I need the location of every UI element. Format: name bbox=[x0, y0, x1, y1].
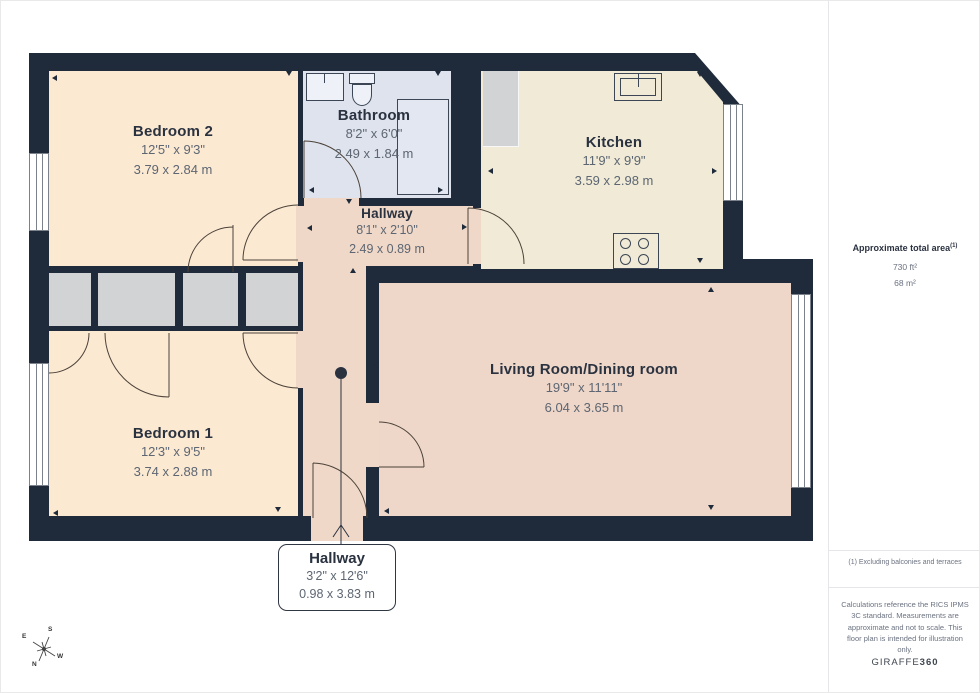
room-name: Living Room/Dining room bbox=[490, 361, 678, 378]
sidebar-divider-1 bbox=[829, 550, 980, 551]
area-m-value: 68 m² bbox=[829, 278, 980, 288]
room-dim-metric: 3.74 x 2.88 m bbox=[133, 462, 213, 482]
room-dim-imperial: 12'3" x 9'5" bbox=[133, 442, 213, 462]
room-dim-metric: 6.04 x 3.65 m bbox=[490, 398, 678, 418]
doorway-bedroom2 bbox=[296, 206, 305, 262]
room-dim-metric: 3.59 x 2.98 m bbox=[575, 171, 654, 191]
compass-star bbox=[33, 637, 55, 661]
room-dim-imperial: 11'9" x 9'9" bbox=[575, 151, 654, 171]
room-name: Bathroom bbox=[335, 107, 414, 124]
room-name: Hallway bbox=[349, 206, 425, 221]
room-name: Hallway bbox=[283, 550, 391, 567]
doorway-living bbox=[366, 403, 379, 467]
kitchen-sink-tap bbox=[638, 73, 639, 87]
label-hallway: Hallway 8'1" x 2'10" 2.49 x 0.89 m bbox=[349, 206, 425, 259]
compass-south: S bbox=[48, 626, 52, 633]
footnote-text: (1) Excluding balconies and terraces bbox=[829, 559, 980, 566]
floorplan-page: Bedroom 2 12'5" x 9'3" 3.79 x 2.84 m Bat… bbox=[0, 0, 980, 693]
area-footnote-marker: (1) bbox=[950, 243, 957, 249]
closet-2 bbox=[98, 273, 175, 326]
room-dim-imperial: 8'1" x 2'10" bbox=[349, 221, 425, 240]
hob-burner-1 bbox=[620, 238, 631, 249]
label-living: Living Room/Dining room 19'9" x 11'11" 6… bbox=[490, 361, 678, 418]
room-name: Bedroom 1 bbox=[133, 425, 213, 442]
window-kitchen bbox=[723, 104, 743, 201]
bathroom-sink-tap bbox=[324, 73, 325, 83]
room-dim-metric: 2.49 x 0.89 m bbox=[349, 240, 425, 259]
kitchen-counter bbox=[483, 71, 519, 147]
area-title: Approximate total area(1) bbox=[829, 243, 980, 253]
compass-east: E bbox=[22, 633, 26, 640]
doorway-front bbox=[311, 516, 363, 541]
window-living bbox=[791, 294, 811, 488]
closet-1 bbox=[49, 273, 91, 326]
info-sidebar: Approximate total area(1) 730 ft² 68 m² … bbox=[828, 1, 980, 693]
area-ft-value: 730 ft² bbox=[829, 262, 980, 272]
room-dim-imperial: 8'2" x 6'0" bbox=[335, 124, 414, 144]
room-name: Kitchen bbox=[575, 134, 654, 151]
room-bedroom1 bbox=[49, 331, 298, 516]
toilet-bowl bbox=[352, 84, 372, 106]
window-bedroom1 bbox=[29, 363, 49, 486]
hob bbox=[613, 233, 659, 269]
bathroom-sink bbox=[306, 73, 344, 101]
label-bedroom1: Bedroom 1 12'3" x 9'5" 3.74 x 2.88 m bbox=[133, 425, 213, 482]
closet-4 bbox=[246, 273, 298, 326]
disclaimer-text: Calculations reference the RICS IPMS 3C … bbox=[829, 599, 980, 655]
compass-north: N bbox=[32, 661, 37, 668]
room-dim-metric: 2.49 x 1.84 m bbox=[335, 144, 414, 164]
room-dim-imperial: 3'2" x 12'6" bbox=[283, 567, 391, 585]
hob-burner-2 bbox=[638, 238, 649, 249]
doorway-bedroom1 bbox=[296, 331, 305, 388]
compass-west: W bbox=[57, 653, 63, 660]
window-bedroom2 bbox=[29, 153, 49, 231]
label-bedroom2: Bedroom 2 12'5" x 9'3" 3.79 x 2.84 m bbox=[133, 123, 213, 180]
room-dim-imperial: 19'9" x 11'11" bbox=[490, 378, 678, 398]
area-title-text: Approximate total area bbox=[853, 243, 951, 253]
brand-bold: 360 bbox=[920, 657, 939, 668]
room-name: Bedroom 2 bbox=[133, 123, 213, 140]
sidebar-divider-2 bbox=[829, 587, 980, 588]
room-dim-metric: 0.98 x 3.83 m bbox=[283, 585, 391, 603]
brand-regular: GIRAFFE bbox=[871, 657, 919, 668]
closet-3 bbox=[183, 273, 238, 326]
label-bathroom: Bathroom 8'2" x 6'0" 2.49 x 1.84 m bbox=[335, 107, 414, 164]
brand-logo: GIRAFFE360 bbox=[829, 657, 980, 668]
room-dim-imperial: 12'5" x 9'3" bbox=[133, 140, 213, 160]
toilet-tank bbox=[349, 73, 375, 84]
hob-burner-4 bbox=[638, 254, 649, 265]
label-kitchen: Kitchen 11'9" x 9'9" 3.59 x 2.98 m bbox=[575, 134, 654, 191]
hob-burner-3 bbox=[620, 254, 631, 265]
room-dim-metric: 3.79 x 2.84 m bbox=[133, 160, 213, 180]
hallway-callout: Hallway 3'2" x 12'6" 0.98 x 3.83 m bbox=[278, 544, 396, 611]
